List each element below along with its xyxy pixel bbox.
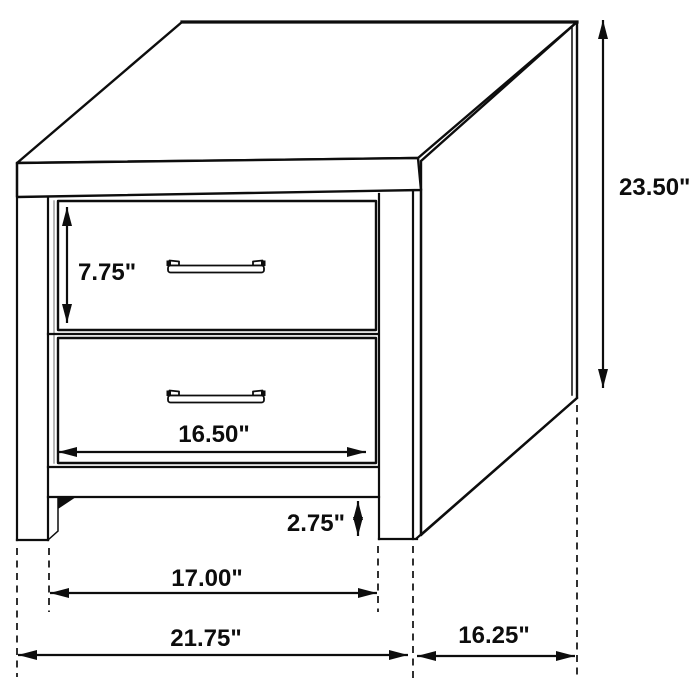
- dim-width-between-legs: 17.00": [50, 565, 377, 593]
- dim-side-depth: 16.25": [417, 622, 575, 656]
- overall-width-label: 21.75": [170, 625, 241, 652]
- diagram-canvas: 23.50" 7.75" 16.50" 2.75" 17.00" 21.75": [0, 0, 700, 700]
- dim-overall-height: 23.50": [603, 20, 690, 388]
- drawer-front-height-label: 7.75": [78, 259, 136, 286]
- top-front-band: [17, 158, 421, 197]
- overall-height-label: 23.50": [619, 174, 690, 201]
- left-leg-inner-face: [48, 497, 58, 540]
- base-clearance-label: 2.75": [287, 510, 345, 537]
- width-between-legs-label: 17.00": [171, 565, 242, 592]
- furniture-dimension-diagram: 23.50" 7.75" 16.50" 2.75" 17.00" 21.75": [0, 0, 700, 700]
- dim-overall-width: 21.75": [18, 625, 408, 655]
- side-depth-label: 16.25": [458, 622, 529, 649]
- left-leg-corner-block: [58, 497, 76, 509]
- dim-base-clearance: 2.75": [287, 501, 358, 537]
- drawer-front-width-label: 16.50": [178, 421, 249, 448]
